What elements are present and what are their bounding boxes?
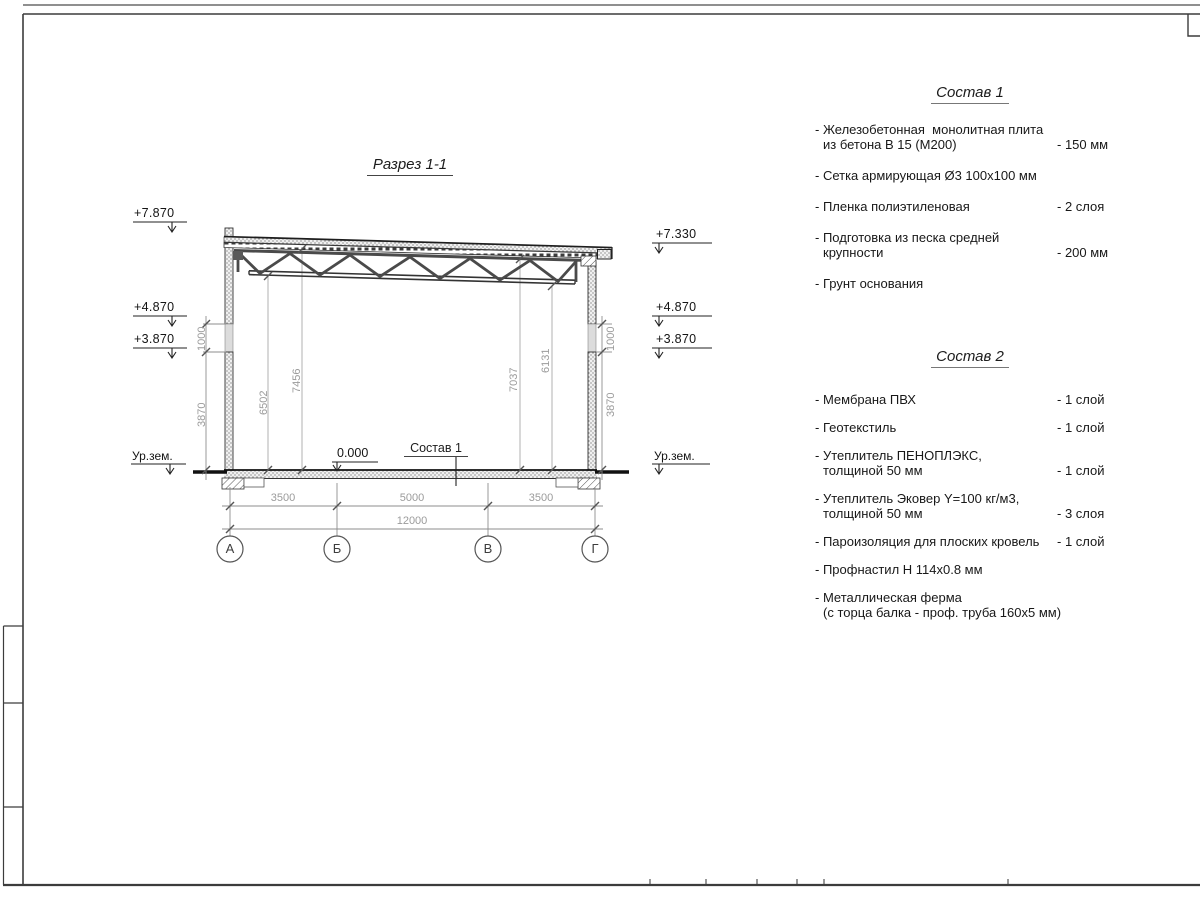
sostav1-title: Состав 1 [815, 84, 1125, 104]
material-item: - Геотекстиль - 1 слой [815, 420, 1125, 435]
right-wall [588, 262, 596, 478]
material-item: - Грунт основания [815, 276, 1125, 291]
material-item: - Пароизоляция для плоских кровель - 1 с… [815, 534, 1125, 549]
axis-bubbles [217, 536, 608, 562]
section-title: Разрез 1-1 [310, 156, 510, 176]
elevation-left-low: +3.870 [134, 332, 174, 346]
dim-right-3870: 3870 [605, 393, 617, 417]
dimension-ticks [202, 245, 606, 533]
sostav2-title: Состав 2 [815, 348, 1125, 368]
dim-5000-bv: 5000 [382, 492, 442, 504]
material-item: - Подготовка из песка средней крупности … [815, 230, 1125, 260]
material-item: - Пленка полиэтиленовая - 2 слоя [815, 199, 1125, 214]
end-beam [598, 250, 612, 260]
dim-12000: 12000 [382, 515, 442, 527]
ground-label-left: Ур.зем. [132, 449, 173, 463]
dim-3500-ab: 3500 [253, 492, 313, 504]
material-item: - Мембрана ПВХ - 1 слой [815, 392, 1125, 407]
elevation-right-top: +7.330 [656, 227, 696, 241]
axis-label-g: Г [587, 541, 603, 556]
axis-label-b: Б [329, 541, 345, 556]
material-item: - Утеплитель Эковер Y=100 кг/м3, толщино… [815, 491, 1125, 521]
material-item: - Сетка армирующая Ø3 100x100 мм [815, 168, 1125, 183]
dim-6131: 6131 [540, 349, 552, 373]
truss-seat-right [581, 256, 596, 266]
material-item: - Утеплитель ПЕНОПЛЭКС, толщиной 50 мм -… [815, 448, 1125, 478]
floor-slab [193, 470, 629, 489]
dim-left-3870: 3870 [196, 403, 208, 427]
elevation-left-mid: +4.870 [134, 300, 174, 314]
dim-7037: 7037 [508, 368, 520, 392]
material-item: - Железобетонная монолитная плита из бет… [815, 122, 1125, 152]
dim-6502: 6502 [258, 391, 270, 415]
dim-7456: 7456 [291, 369, 303, 393]
zero-level-label: 0.000 [337, 446, 368, 460]
material-item: - Профнастил Н 114x0.8 мм [815, 562, 1125, 577]
ground-label-right: Ур.зем. [654, 449, 695, 463]
floor-composition-label: Состав 1 [404, 441, 468, 457]
drawing-sheet: Разрез 1-1 +7.870 +4.870 +3.870 Ур.зем. … [0, 0, 1200, 900]
truss-seat-left [233, 251, 243, 260]
material-item: - Металлическая ферма (с торца балка - п… [815, 590, 1125, 620]
elevation-left-top: +7.870 [134, 206, 174, 220]
dim-3500-vg: 3500 [511, 492, 571, 504]
sostav1-list: - Железобетонная монолитная плита из бет… [815, 122, 1125, 307]
axis-label-a: А [222, 541, 238, 556]
dim-left-1000: 1000 [196, 327, 208, 351]
sostav2-list: - Мембрана ПВХ - 1 слой - Геотекстиль - … [815, 392, 1125, 633]
elevation-right-low: +3.870 [656, 332, 696, 346]
dim-right-1000: 1000 [605, 327, 617, 351]
left-wall [225, 228, 233, 478]
elevation-right-mid: +4.870 [656, 300, 696, 314]
axis-label-v: В [480, 541, 496, 556]
